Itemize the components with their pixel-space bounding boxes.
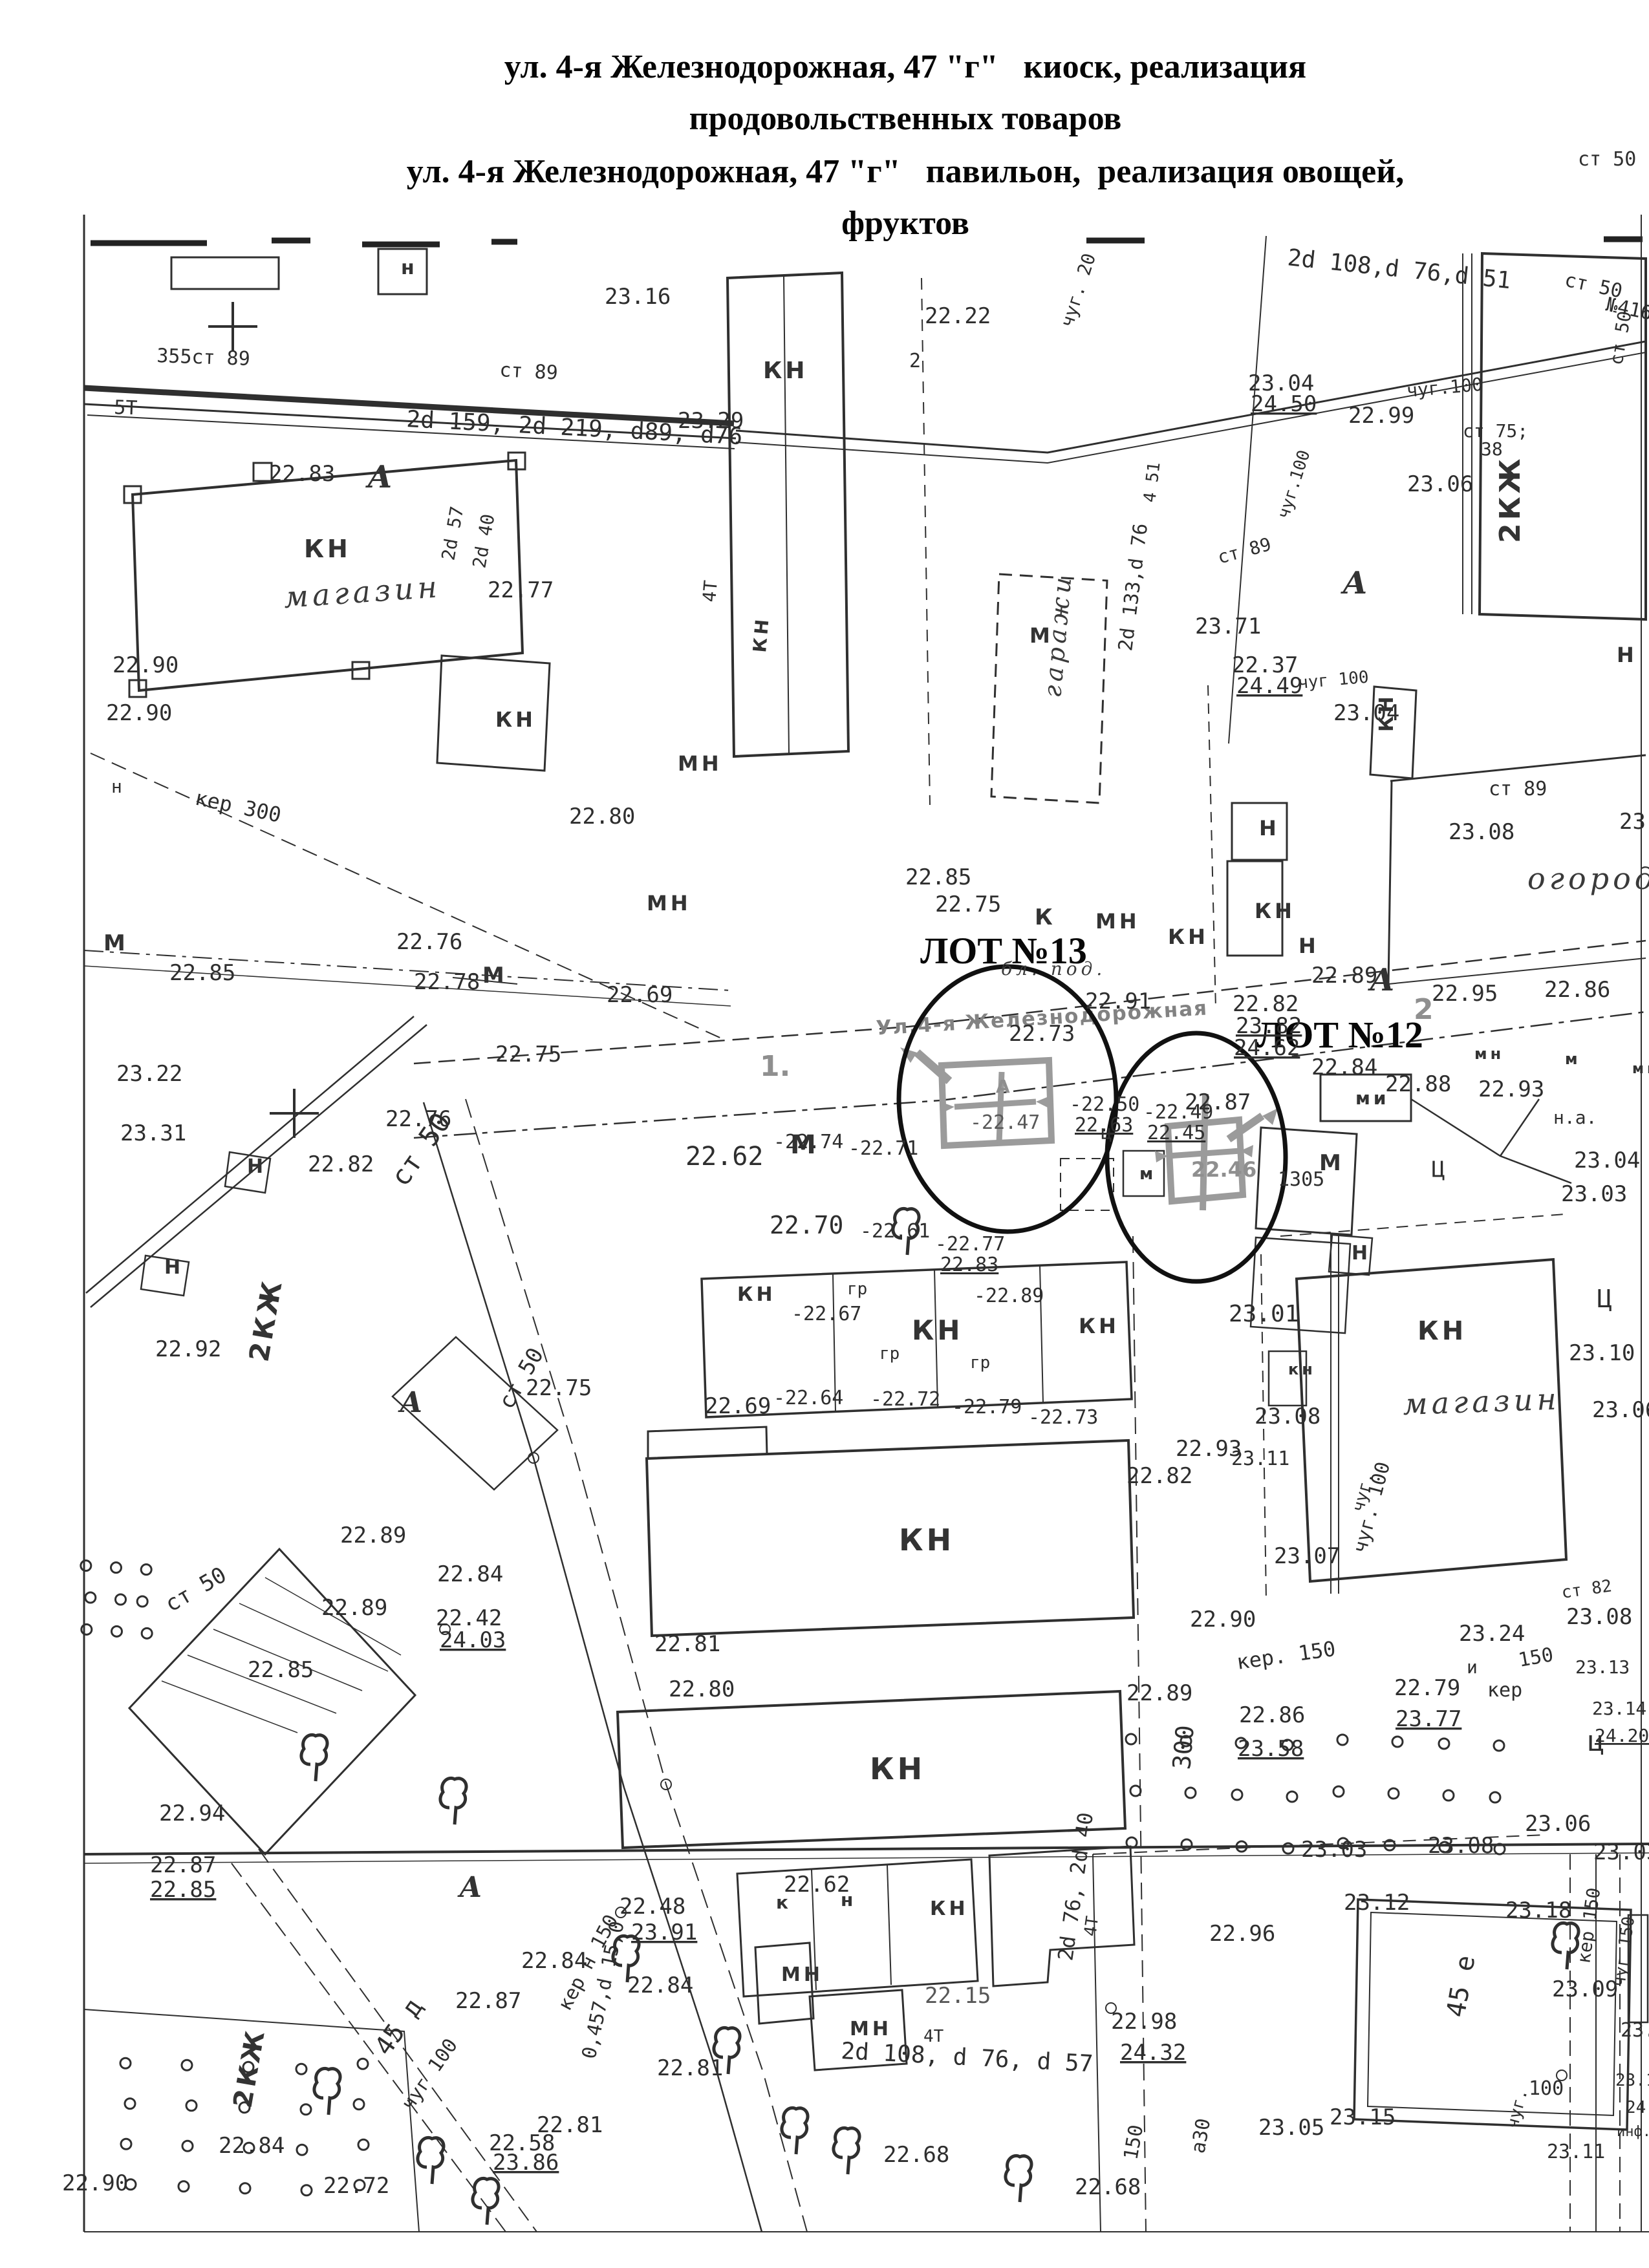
map-label: 24.32 [1120, 2040, 1186, 2066]
map-label: ми [1355, 1087, 1390, 1109]
vegetation-dot [240, 2183, 250, 2194]
map-label: 23.11 [1547, 2141, 1605, 2163]
map-label: -22.73 [1028, 1406, 1098, 1429]
map-label: 22.68 [1075, 2174, 1141, 2200]
grid-cross-icon [208, 302, 257, 351]
map-label: 1305 [1278, 1168, 1324, 1191]
map-label: 23.05 [1258, 2115, 1324, 2141]
map-label: 22.75 [526, 1375, 592, 1401]
map-label: 23.91 [631, 1920, 697, 1945]
map-label: 22.98 [1111, 2009, 1177, 2035]
grid-cross-icon [270, 1089, 319, 1138]
map-label: 23.08 [1566, 1604, 1632, 1630]
map-label: М [482, 963, 508, 989]
map-label: МН [678, 751, 722, 776]
header-line-3: ул. 4-я Железнодорожная, 47 "г" павильон… [407, 153, 1404, 190]
map-label: н.а. [1553, 1107, 1597, 1128]
map-label: ст 89 [1489, 778, 1547, 800]
map-label: ст 50 [161, 1562, 232, 1618]
map-label: А [996, 1076, 1010, 1097]
map-label: 2КЖ [228, 2026, 272, 2110]
map-label: 22.89 [1126, 1680, 1192, 1706]
map-labels: н23.1622.222d 108,d 76,d 51чуг. 20ст 50№… [62, 148, 1649, 2200]
map-label: 22.62 [784, 1872, 850, 1898]
map-label: А [398, 1386, 423, 1419]
map-label: 45 е [1441, 1953, 1482, 2020]
map-label: -22.74 [773, 1131, 843, 1153]
map-label: 22.70 [770, 1211, 843, 1239]
map-label: 1. [760, 1050, 790, 1083]
map-label: 23.10 [1621, 2019, 1649, 2042]
map-label: КН [899, 1523, 954, 1557]
tree-icon [418, 2137, 444, 2184]
tree-icon [301, 1735, 327, 1781]
map-label: 22.90 [113, 652, 178, 678]
map-label: 22.93 [1478, 1076, 1544, 1102]
map-label: -22.77 [935, 1233, 1005, 1256]
tree-icon [782, 2108, 808, 2154]
map-label: 22.77 [488, 577, 554, 603]
vegetation-dot [142, 1628, 152, 1638]
map-label: ст 50 [1578, 148, 1636, 171]
map-label: 22.90 [106, 700, 172, 726]
map-label: 22.84 [219, 2133, 285, 2159]
map-label: Н [1299, 934, 1319, 958]
map-label: -22.47 [970, 1111, 1040, 1134]
vegetation-dot [1126, 1734, 1136, 1744]
vegetation-dot [1287, 1792, 1297, 1802]
map-label: 2 [1414, 993, 1434, 1026]
map-label: 22.83 [269, 461, 335, 487]
map-label: 22.69 [705, 1393, 771, 1419]
map-label: МН [1095, 909, 1140, 934]
map-label: 22.81 [657, 2055, 723, 2081]
map-label: 23.10 [1619, 809, 1649, 835]
vegetation-dot [182, 2141, 193, 2151]
map-label: 22.85 [169, 960, 235, 986]
vegetation-dot [186, 2101, 197, 2111]
map-label: огород [1527, 861, 1649, 896]
map-label: 2d 57 [437, 504, 468, 562]
map-label: 23.16 [605, 284, 671, 310]
map-label: 100 [1529, 2077, 1564, 2100]
map-label: -22.61 [860, 1220, 930, 1243]
map-label: КН [930, 1898, 969, 1920]
map-label: Н [247, 1155, 266, 1178]
map-label: 23.08 [1428, 1833, 1494, 1859]
vegetation-dot [1333, 1786, 1344, 1797]
map-label: 22.22 [925, 303, 991, 329]
vegetation-dot [354, 2099, 364, 2110]
map-label: 22.96 [1209, 1921, 1275, 1947]
map-label: ст 50 [1605, 309, 1635, 367]
header: ул. 4-я Железнодорожная, 47 "г" киоск, р… [407, 48, 1404, 242]
map-label: инф. [1617, 2124, 1649, 2140]
map-label: 355ст 89 [156, 345, 251, 370]
map-label: 22.75 [935, 892, 1001, 917]
map-label: КН [1417, 1316, 1467, 1346]
map-label: 23.07 [1274, 1543, 1340, 1569]
vegetation-dot [1490, 1792, 1500, 1803]
vegetation-dot [301, 2185, 312, 2196]
map-label: 24.50 [1251, 391, 1317, 417]
vegetation-dot [1185, 1788, 1196, 1798]
map-label: КН [304, 535, 351, 563]
map-label: 22.85 [248, 1657, 314, 1683]
map-label: 23.77 [1396, 1706, 1461, 1732]
map-label: 2 [909, 350, 921, 372]
map-label: 22.95 [1432, 981, 1498, 1007]
map-label: 22.45 [1147, 1122, 1205, 1144]
map-label: 23.86 [493, 2150, 559, 2176]
map-label: 22.87 [455, 1988, 521, 2014]
map-label: 23.03 [1561, 1181, 1627, 1207]
vegetation-dot [116, 1594, 126, 1605]
header-line-2: продовольственных товаров [689, 100, 1122, 137]
vegetation-dot [121, 2139, 131, 2149]
vegetation-dot [182, 2060, 192, 2070]
map-label: 22.68 [883, 2142, 949, 2168]
map-label: 23.58 [1238, 1736, 1304, 1762]
map-label: 22.92 [155, 1336, 221, 1362]
map-label: 22.83 [940, 1254, 998, 1276]
map-label: 2d 76, 2d 40 [1053, 1811, 1098, 1962]
map-label: Ц [1432, 1157, 1445, 1182]
map-label: 23.71 [1195, 614, 1261, 639]
header-line-1: ул. 4-я Железнодорожная, 47 "г" киоск, р… [504, 48, 1306, 85]
map-label: 23.16 [1615, 2071, 1649, 2090]
map-label: 22.90 [62, 2170, 128, 2196]
map-label: 2d 108, d 76, d 57 [841, 2038, 1094, 2077]
map-label: -22.72 [870, 1388, 940, 1411]
vegetation-dot [1130, 1786, 1141, 1796]
map-label: гр [847, 1279, 867, 1299]
map-label: ц [1101, 1122, 1112, 1144]
map-label: 24.09 [1626, 2098, 1649, 2117]
map-label: 22.89 [321, 1595, 387, 1621]
map-label: бл. под. [1001, 958, 1106, 979]
map-label: 22.80 [569, 804, 635, 829]
map-label: м [1565, 1050, 1581, 1068]
map-label: 23.08 [1449, 819, 1514, 845]
map-label: МН [850, 2018, 892, 2040]
map-label: кер [1487, 1679, 1522, 1702]
map-label: 22.46 [1191, 1157, 1256, 1182]
map-label: 22.85 [905, 864, 971, 890]
map-label: 24.62 [1234, 1035, 1300, 1061]
tree-icon [440, 1778, 466, 1824]
map-label: 23.22 [116, 1061, 182, 1087]
map-label: 150 [1516, 1643, 1555, 1672]
map-label: 300 [1167, 1724, 1200, 1771]
map-label: 22.15 [925, 1983, 991, 2009]
map-label: 22.82 [308, 1151, 374, 1177]
header-line-4: фруктов [841, 205, 969, 242]
map-label: -22.79 [952, 1396, 1022, 1418]
map-label: 22.86 [1239, 1702, 1305, 1728]
map-label: 22.75 [495, 1042, 561, 1067]
map-label: 22.48 [620, 1894, 685, 1920]
map-label: 22.94 [159, 1801, 225, 1826]
map-label: 22.84 [627, 1973, 693, 1998]
vegetation-dot [125, 2099, 135, 2109]
tree-symbols [301, 1208, 1579, 2225]
map-label: МН [647, 891, 691, 915]
map-label: 22.62 [685, 1142, 763, 1171]
map-label: 23.15 [1330, 2104, 1396, 2130]
scanned-map-page: ул. 4-я Железнодорожная, 47 "г" киоск, р… [0, 0, 1649, 2268]
vegetation-dot [1388, 1788, 1399, 1799]
vegetation-dot [1232, 1790, 1242, 1800]
map-label: гаражи [1038, 572, 1077, 699]
map-label: 22.87 [150, 1852, 216, 1878]
map-label: мн [1632, 1061, 1649, 1077]
map-label: 23.18 [1505, 1898, 1571, 1923]
map-label: К [1035, 904, 1056, 930]
map-label: -22.71 [848, 1137, 918, 1160]
map-label: кер 300 [193, 786, 283, 828]
vegetation-dot [1283, 1843, 1293, 1854]
map-label: КН [1375, 693, 1398, 732]
map-label: 23.31 [120, 1120, 186, 1146]
map-label: 22.88 [1385, 1071, 1451, 1097]
map-label: 23.10 [1569, 1340, 1635, 1366]
map-label: 22.86 [1544, 977, 1610, 1003]
map-label: КН [870, 1751, 925, 1786]
map-label: КН [737, 1283, 776, 1306]
map-label: 4Т [1081, 1914, 1103, 1938]
map-label: 22.69 [607, 982, 673, 1008]
map-label: КН [1079, 1314, 1119, 1338]
map-label: 2КЖ [1494, 456, 1527, 543]
map-label: чуг 100 [1297, 668, 1370, 693]
map-label: 23.01 [1229, 1301, 1299, 1327]
map-label: А [1368, 962, 1395, 998]
map-label: ст 82 [1560, 1576, 1613, 1603]
map-label: чуг 150 [1610, 1915, 1639, 1988]
map-label: КН [763, 358, 808, 384]
vegetation-dot [1392, 1737, 1403, 1747]
map-label: 2d 133,d 76 [1114, 522, 1152, 652]
map-label: кер 150 [1573, 1887, 1604, 1965]
vegetation-dot [358, 2059, 368, 2069]
map-label: 22.80 [669, 1676, 735, 1702]
map-label: КН [912, 1314, 963, 1346]
map-label: 22.76 [396, 929, 462, 955]
map-label: ст 89 [499, 359, 559, 385]
map-label: -22.49 [1143, 1101, 1213, 1124]
map-label: Н [1617, 643, 1637, 667]
vegetation-dot [111, 1563, 122, 1573]
map-label: к [776, 1892, 792, 1913]
map-label: 23.12 [1344, 1890, 1410, 1916]
grid-crosses [208, 302, 319, 1138]
vegetation-dot [137, 1596, 147, 1607]
map-label: 22.73 [1009, 1021, 1075, 1047]
map-label: -22.50 [1070, 1093, 1139, 1116]
vegetation-dot [112, 1626, 122, 1636]
map-label: 4Т [698, 579, 722, 603]
map-label: Н [164, 1256, 184, 1279]
map-label: 23.09 [1552, 1976, 1618, 2002]
vegetation-dot [358, 2139, 369, 2150]
vegetation-dot [296, 2064, 307, 2074]
map-label: н [841, 1889, 856, 1910]
map-label: -22.89 [974, 1285, 1044, 1307]
map-label: А [1341, 565, 1368, 601]
map-label: М [103, 930, 129, 956]
map-label: 23.03 [1301, 1837, 1367, 1863]
map-label: 23.06 [1525, 1811, 1591, 1837]
tree-icon [1006, 2156, 1031, 2202]
map-label: 22.81 [654, 1631, 720, 1657]
map-label: м [1139, 1164, 1156, 1184]
map-label: 22.89 [340, 1523, 406, 1548]
map-label: 24.49 [1236, 673, 1302, 699]
map-label: ц [1588, 1725, 1605, 1758]
map-label: 45 д [369, 1993, 429, 2060]
map-label: 150 [1119, 2123, 1148, 2161]
map-label: 22.79 [1394, 1675, 1460, 1701]
map-label: 22.84 [1311, 1054, 1377, 1080]
map-label: 22.85 [150, 1877, 216, 1903]
map-label: 22.84 [437, 1561, 503, 1587]
map-label: 24.03 [440, 1627, 506, 1653]
vegetation-dot [120, 2058, 131, 2068]
map-label: 2КЖ [243, 1276, 289, 1364]
map-label: мн [1474, 1045, 1504, 1063]
vegetation-dot [81, 1624, 92, 1634]
map-label: и [1467, 1656, 1478, 1678]
map-label: 22.89 [1311, 963, 1377, 989]
map-label: 23.03 [1593, 1839, 1649, 1865]
map-label: 23.08 [1255, 1404, 1320, 1429]
vegetation-dot [141, 1565, 151, 1575]
map-label: 23.11 [1231, 1448, 1289, 1470]
vegetation-dot [85, 1592, 96, 1603]
map-label: -22.64 [773, 1387, 843, 1409]
map-label: н [401, 257, 418, 279]
map-label: 2d 40 [468, 512, 499, 570]
map-label: 22.90 [1190, 1607, 1256, 1632]
map-label: кер. 150 [1235, 1636, 1337, 1674]
vegetation-dot [1494, 1740, 1504, 1751]
map-label: 23.04 [1574, 1148, 1640, 1173]
map-label: А [457, 1871, 482, 1904]
map-label: А [365, 459, 393, 495]
map-label: гр [879, 1344, 900, 1364]
cadastral-map: ул. 4-я Железнодорожная, 47 "г" киоск, р… [0, 0, 1649, 2268]
map-label: кн [1288, 1360, 1316, 1378]
map-label: н [111, 776, 122, 797]
vegetation-dot [301, 2104, 311, 2115]
map-label: магазин [1402, 1382, 1560, 1422]
map-label: 22.91 [1085, 989, 1151, 1014]
map-label: 23.06 [1407, 471, 1473, 497]
tree-icon [473, 2178, 499, 2225]
vegetation-dot [1337, 1735, 1348, 1745]
vegetation-dot [1443, 1790, 1454, 1801]
tree-icon [834, 2128, 859, 2174]
map-label: КН [749, 615, 773, 654]
map-label: 22.99 [1348, 403, 1414, 429]
vegetation-dot [81, 1561, 91, 1571]
map-label: магазин [283, 569, 442, 615]
map-label: 22.82 [1126, 1463, 1192, 1489]
map-label: 23.29 [678, 408, 744, 434]
map-label: -22.67 [792, 1303, 861, 1325]
map-label: КН [495, 707, 536, 732]
map-label: Н [1259, 816, 1280, 840]
map-label: 23.06 [1592, 1397, 1649, 1423]
vegetation-dot [178, 2181, 189, 2192]
map-label: 23.13 [1575, 1656, 1630, 1678]
vegetation-dot [297, 2145, 307, 2155]
map-label: 4 51 [1140, 461, 1164, 504]
map-label: КН [1168, 925, 1209, 949]
map-label: Н [1352, 1242, 1371, 1265]
map-label: 2d 108,d 76,d 51 [1286, 244, 1512, 294]
map-label: чуг.100 [1274, 448, 1314, 521]
tree-icon [314, 2068, 340, 2115]
map-label: чуг. [1503, 2087, 1532, 2131]
map-label: КН [1255, 899, 1295, 923]
map-label: 22.78 [414, 969, 480, 995]
map-label: гр [970, 1353, 990, 1373]
vegetation-dot [1439, 1738, 1449, 1749]
map-label: 23.14 [1592, 1698, 1646, 1719]
map-label: МН [781, 1963, 823, 1986]
map-label: 5Т [114, 396, 138, 420]
map-label: а30 [1187, 2117, 1215, 2155]
map-label: Ц [1597, 1285, 1612, 1313]
map-label: 23.24 [1459, 1621, 1525, 1647]
map-label: чуг. 20 [1056, 251, 1100, 330]
map-label: 22.72 [323, 2173, 389, 2199]
